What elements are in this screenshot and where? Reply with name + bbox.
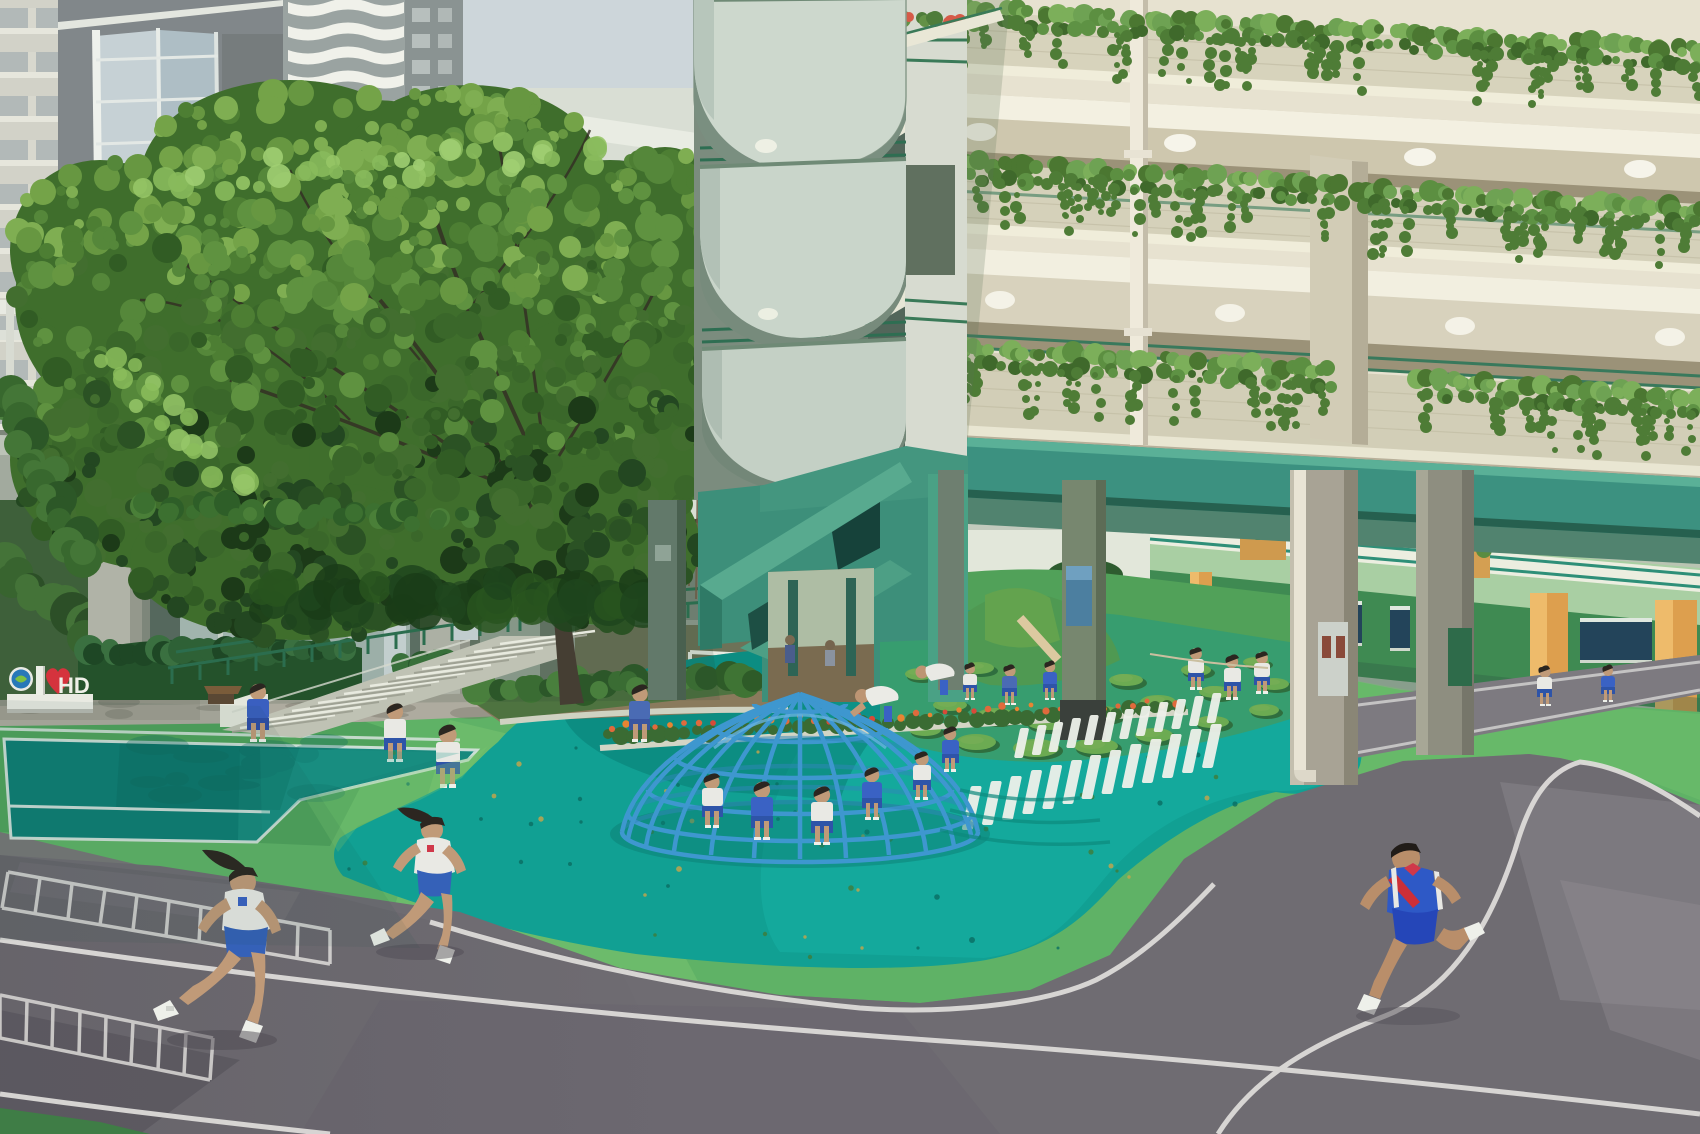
svg-text:HD: HD <box>58 673 90 698</box>
